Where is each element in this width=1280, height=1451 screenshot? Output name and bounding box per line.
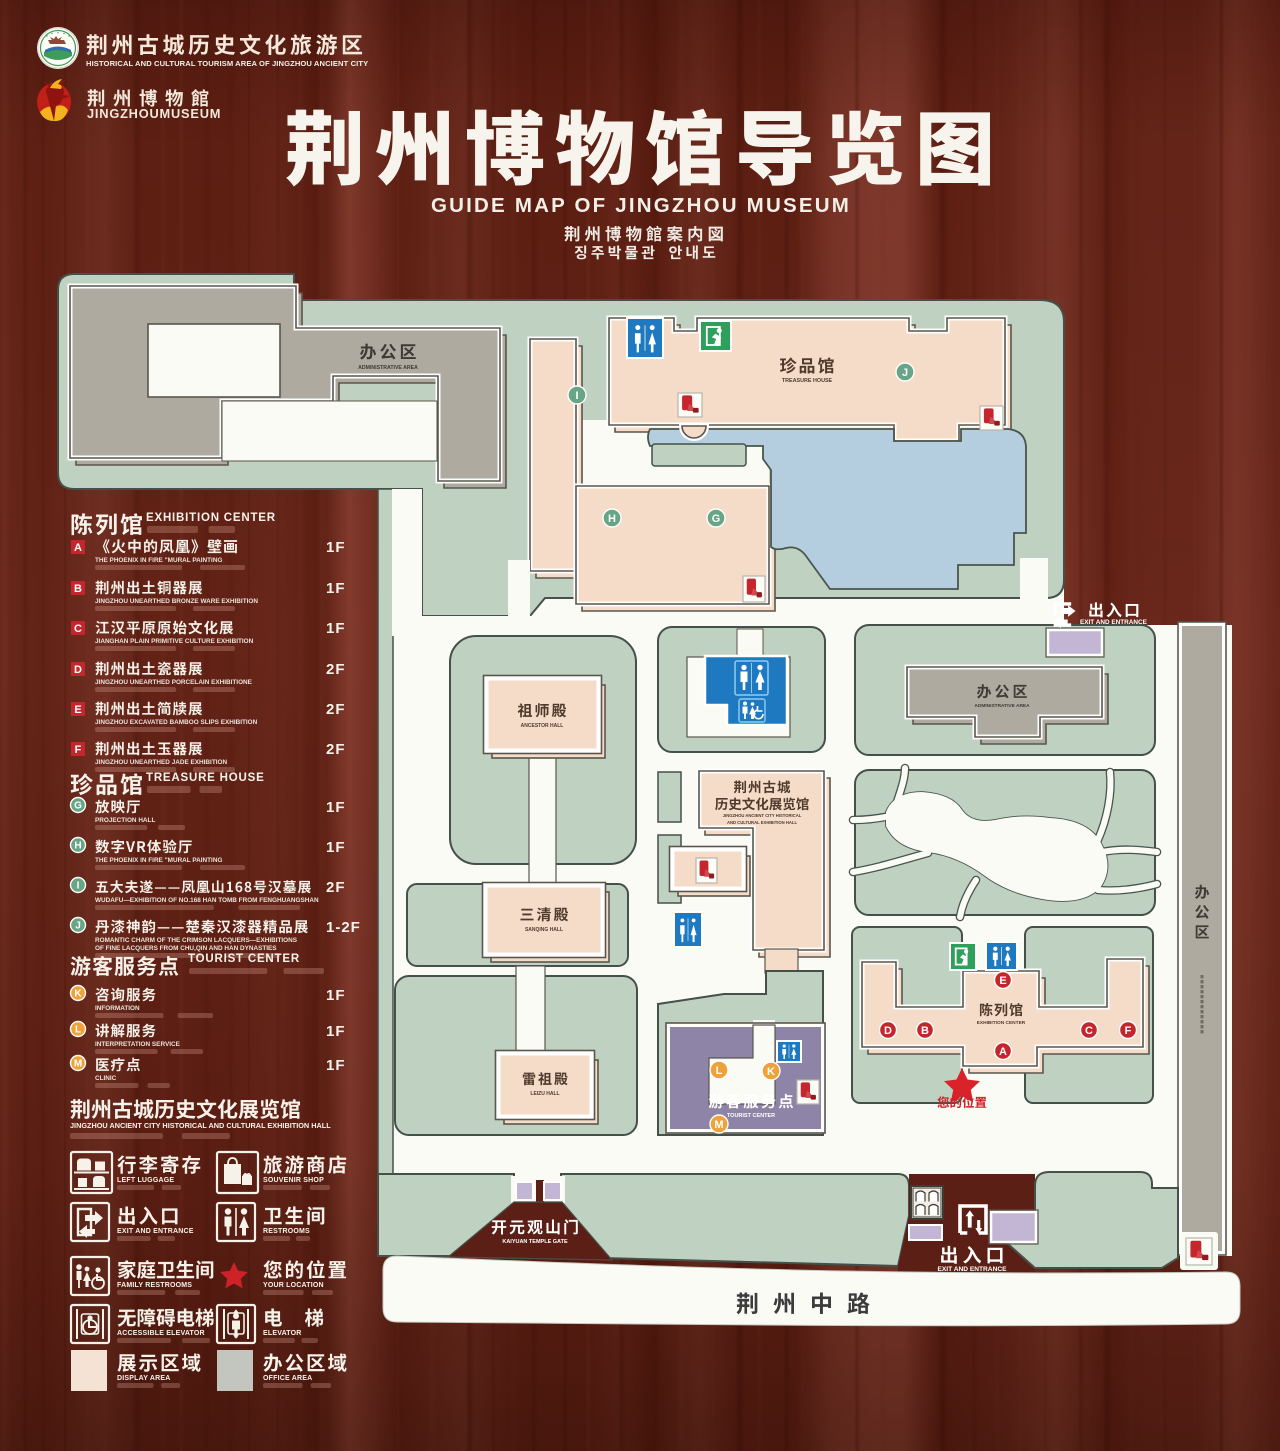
svg-text:G: G: [712, 513, 721, 525]
svg-text:SOUVENIR SHOP: SOUVENIR SHOP: [263, 1177, 324, 1184]
svg-text:LEIZU HALL: LEIZU HALL: [530, 1091, 559, 1097]
svg-text:M: M: [714, 1119, 723, 1131]
svg-text:D: D: [74, 664, 82, 676]
svg-text:1F: 1F: [326, 1057, 346, 1074]
svg-text:F: F: [1125, 1025, 1132, 1037]
svg-text:A: A: [999, 1046, 1007, 1058]
svg-text:H: H: [608, 513, 616, 525]
svg-text:2F: 2F: [326, 701, 346, 718]
svg-text:JINGZHOU UNEARTHED JADE EXHIBI: JINGZHOU UNEARTHED JADE EXHIBITION: [95, 759, 227, 766]
svg-text:ACCESSIBLE ELEVATOR: ACCESSIBLE ELEVATOR: [117, 1330, 205, 1337]
svg-text:D: D: [884, 1025, 892, 1037]
svg-text:THE PHOENIX IN FIRE "MURAL PAI: THE PHOENIX IN FIRE "MURAL PAINTING: [95, 557, 222, 564]
svg-text:J: J: [75, 921, 81, 932]
svg-text:H: H: [74, 841, 81, 852]
svg-text:TREASURE HOUSE: TREASURE HOUSE: [146, 772, 265, 784]
svg-text:E: E: [74, 704, 81, 716]
svg-text:EXHIBITION CENTER: EXHIBITION CENTER: [146, 512, 276, 524]
svg-text:I: I: [77, 881, 80, 892]
svg-text:OFFICE AREA: OFFICE AREA: [263, 1375, 312, 1382]
svg-text:ROMANTIC CHARM OF THE CRIMSON: ROMANTIC CHARM OF THE CRIMSON LACQUERS—E…: [95, 937, 298, 944]
svg-text:KAIYUAN TEMPLE GATE: KAIYUAN TEMPLE GATE: [502, 1239, 568, 1245]
svg-text:F: F: [75, 744, 82, 756]
svg-text:1F: 1F: [326, 620, 346, 637]
svg-text:1F: 1F: [326, 839, 346, 856]
svg-text:C: C: [74, 623, 82, 635]
svg-text:JINGZHOU EXCAVATED BAMBOO SLIP: JINGZHOU EXCAVATED BAMBOO SLIPS EXHIBITI…: [95, 719, 258, 726]
svg-text:E: E: [999, 975, 1006, 987]
svg-text:CLINIC: CLINIC: [95, 1075, 117, 1082]
svg-text:WUDAFU—EXHIBITION OF NO.168 HA: WUDAFU—EXHIBITION OF NO.168 HAN TOMB FRO…: [95, 897, 319, 904]
svg-text:LEFT LUGGAGE: LEFT LUGGAGE: [117, 1177, 174, 1184]
svg-text:ADMINISTRATIVE AREA: ADMINISTRATIVE AREA: [358, 365, 418, 371]
svg-text:K: K: [767, 1066, 775, 1078]
svg-text:2F: 2F: [326, 661, 346, 678]
svg-text:EXHIBITION CENTER: EXHIBITION CENTER: [977, 1020, 1026, 1026]
svg-text:K: K: [74, 989, 82, 1000]
svg-text:1F: 1F: [326, 1023, 346, 1040]
svg-text:1F: 1F: [326, 539, 346, 556]
svg-text:C: C: [1085, 1025, 1093, 1037]
svg-text:G: G: [74, 801, 82, 812]
svg-text:ANCESTOR HALL: ANCESTOR HALL: [521, 723, 564, 729]
svg-text:1F: 1F: [326, 799, 346, 816]
svg-text:JIANGHAN PLAIN PRIMITIVE CULTU: JIANGHAN PLAIN PRIMITIVE CULTURE EXHIBIT…: [95, 638, 254, 645]
svg-text:2F: 2F: [326, 741, 346, 758]
svg-text:1-2F: 1-2F: [326, 919, 361, 936]
svg-text:THE PHOENIX IN FIRE "MURAL PAI: THE PHOENIX IN FIRE "MURAL PAINTING: [95, 857, 222, 864]
svg-text:EXIT AND ENTRANCE: EXIT AND ENTRANCE: [938, 1266, 1008, 1273]
svg-text:B: B: [74, 583, 82, 595]
svg-text:EXIT AND ENTRANCE: EXIT AND ENTRANCE: [117, 1228, 194, 1235]
svg-text:B: B: [921, 1025, 929, 1037]
svg-text:INFORMATION: INFORMATION: [95, 1005, 140, 1012]
svg-text:OF FINE LACQUERS FROM CHU,QIN: OF FINE LACQUERS FROM CHU,QIN AND HAN DY…: [95, 945, 277, 952]
svg-text:M: M: [74, 1059, 82, 1070]
svg-text:EXIT AND ENTRANCE: EXIT AND ENTRANCE: [1080, 619, 1148, 626]
svg-text:A: A: [74, 542, 82, 554]
svg-text:JINGZHOU ANCIENT CITY HISTORIC: JINGZHOU ANCIENT CITY HISTORICAL AND CUL…: [70, 1121, 331, 1130]
svg-text:AND CULTURAL EXHIBITION HALL: AND CULTURAL EXHIBITION HALL: [727, 820, 798, 825]
svg-text:ADMINISTRATIVE AREA: ADMINISTRATIVE AREA: [974, 703, 1030, 709]
svg-text:TOURIST CENTER: TOURIST CENTER: [188, 953, 300, 965]
svg-text:J: J: [902, 367, 908, 379]
svg-text:JINGZHOUMUSEUM: JINGZHOUMUSEUM: [87, 106, 221, 121]
svg-text:PROJECTION HALL: PROJECTION HALL: [95, 817, 155, 824]
svg-text:FAMILY RESTROOMS: FAMILY RESTROOMS: [117, 1282, 192, 1289]
svg-text:RESTROOMS: RESTROOMS: [263, 1228, 310, 1235]
svg-text:L: L: [716, 1065, 723, 1077]
svg-text:1F: 1F: [326, 987, 346, 1004]
svg-text:L: L: [75, 1025, 81, 1036]
svg-text:GUIDE MAP OF JINGZHOU MUSEUM: GUIDE MAP OF JINGZHOU MUSEUM: [431, 194, 851, 217]
svg-text:YOUR LOCATION: YOUR LOCATION: [263, 1282, 324, 1289]
svg-text:ELEVATOR: ELEVATOR: [263, 1330, 302, 1337]
svg-text:JINGZHOU ANCIENT CITY HISTORIC: JINGZHOU ANCIENT CITY HISTORICAL: [723, 813, 802, 818]
svg-text:TOURIST CENTER: TOURIST CENTER: [727, 1113, 775, 1119]
svg-text:2F: 2F: [326, 879, 346, 896]
svg-text:DISPLAY AREA: DISPLAY AREA: [117, 1375, 171, 1382]
svg-text:TREASURE HOUSE: TREASURE HOUSE: [782, 378, 833, 384]
svg-text:I: I: [575, 390, 578, 402]
svg-text:1F: 1F: [326, 580, 346, 597]
svg-text:HISTORICAL AND CULTURAL TOURIS: HISTORICAL AND CULTURAL TOURISM AREA OF …: [86, 59, 368, 68]
svg-text:JINGZHOU UNEARTHED PORCELAIN E: JINGZHOU UNEARTHED PORCELAIN EXHIBITIONE: [95, 679, 253, 686]
svg-text:INTERPRETATION SERVICE: INTERPRETATION SERVICE: [95, 1041, 181, 1048]
svg-text:SANQING HALL: SANQING HALL: [525, 927, 563, 933]
svg-text:JINGZHOU UNEARTHED BRONZE WARE: JINGZHOU UNEARTHED BRONZE WARE EXHIBITIO…: [95, 598, 258, 605]
